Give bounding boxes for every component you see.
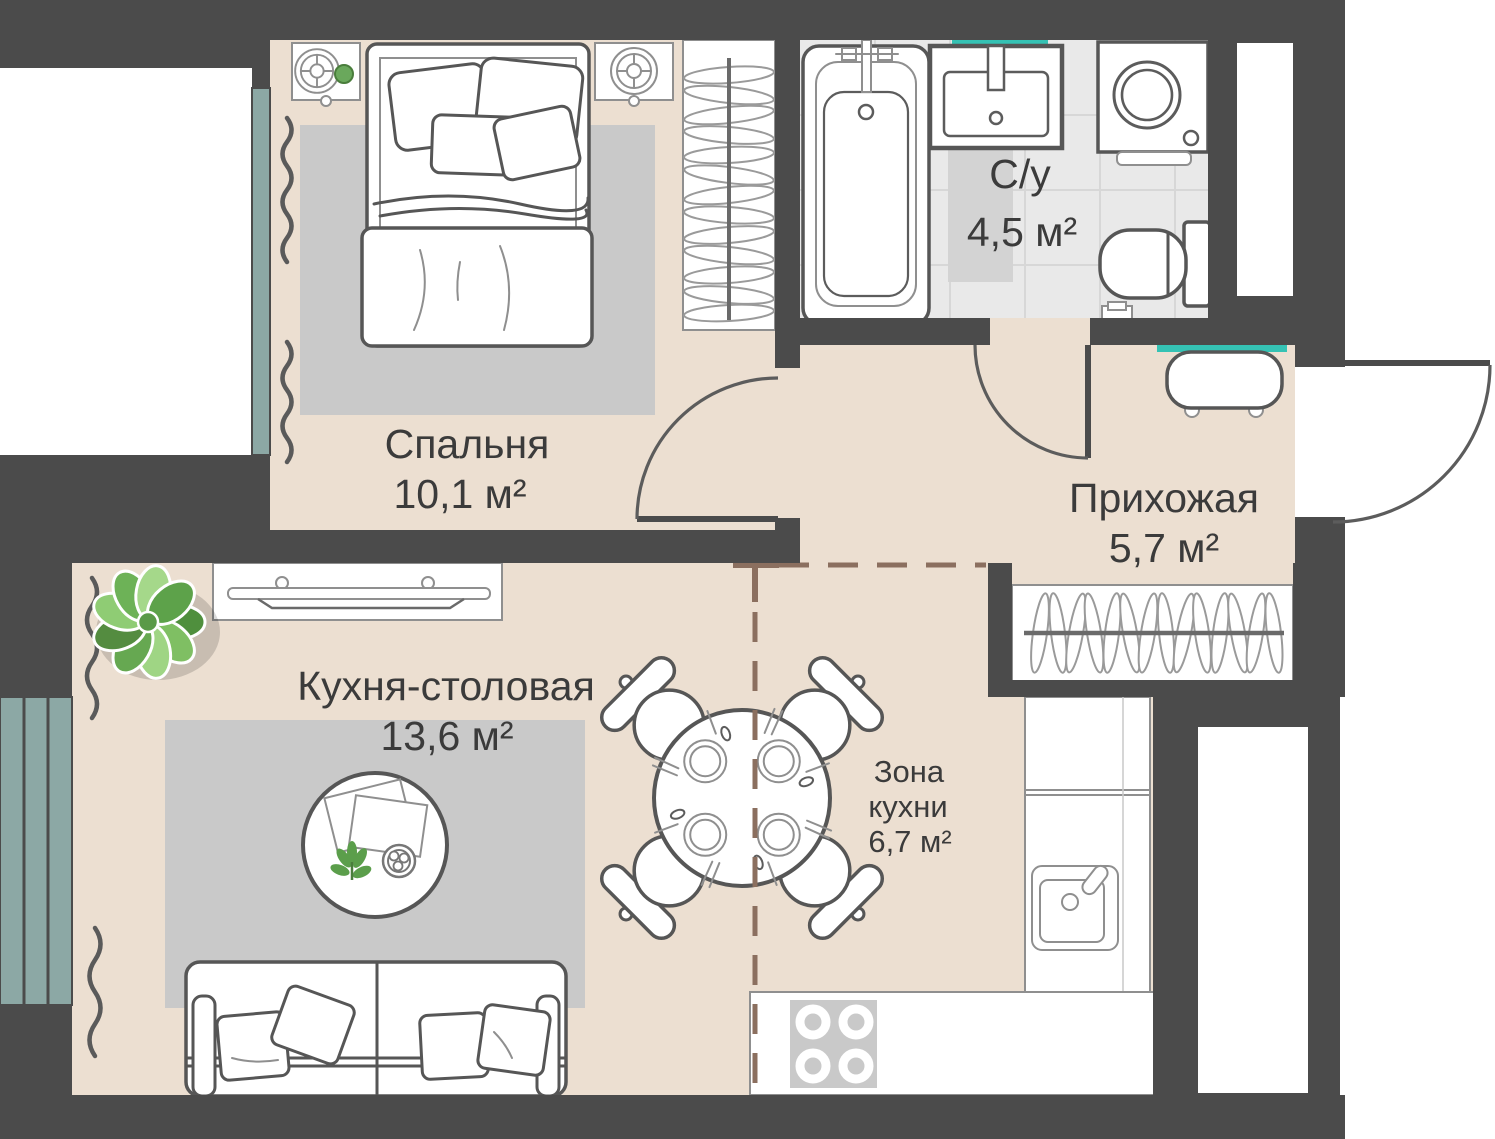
- living-window: [0, 697, 72, 1005]
- bathroom-name: С/у: [989, 151, 1051, 197]
- nightstand-left: [292, 43, 360, 106]
- wardrobe: [683, 40, 775, 330]
- floor-plan: Спальня 10,1 м² С/у 4,5 м² Прихожая 5,7 …: [0, 0, 1495, 1139]
- hallway-area: 5,7 м²: [1109, 525, 1219, 571]
- bath-doorway-floor: [990, 318, 1090, 345]
- tv-icon: [228, 588, 490, 599]
- bedroom-window: [252, 88, 270, 455]
- bedroom-area: 10,1 м²: [393, 471, 526, 517]
- duct-right: [1198, 727, 1308, 1093]
- bathtub: [803, 40, 929, 324]
- duct-top: [1237, 43, 1293, 296]
- kitchen-dining-name: Кухня-столовая: [297, 663, 595, 709]
- floor-plan-svg: Спальня 10,1 м² С/у 4,5 м² Прихожая 5,7 …: [0, 0, 1495, 1139]
- bed: [362, 44, 592, 346]
- bathroom-area: 4,5 м²: [967, 209, 1077, 255]
- hallway-name: Прихожая: [1069, 475, 1259, 521]
- kitchen-zone-area: 6,7 м²: [868, 824, 951, 859]
- bench: [1167, 352, 1282, 417]
- dining-table: [654, 710, 830, 886]
- tv-console: [213, 563, 502, 620]
- nightstand-plant-icon: [335, 65, 353, 83]
- bathroom-sink: [930, 40, 1062, 148]
- kitchen-zone-line2: кухни: [868, 789, 947, 824]
- bed-blanket: [362, 228, 592, 346]
- coat-rack: [1012, 585, 1293, 682]
- bedroom-name: Спальня: [385, 421, 550, 467]
- stove: [790, 1000, 877, 1088]
- sofa: [186, 962, 566, 1096]
- bowl-icon: [383, 845, 415, 877]
- washing-machine: [1098, 42, 1208, 165]
- bedroom-doorway-floor: [775, 368, 800, 518]
- kitchen-sink: [1032, 863, 1118, 950]
- kitchen-dining-area: 13,6 м²: [380, 713, 513, 759]
- nightstand-right: [595, 43, 673, 106]
- coffee-table: [303, 773, 447, 917]
- kitchen-counter-bottom: [750, 992, 1155, 1095]
- entrance-door: [1333, 363, 1490, 522]
- kitchen-zone-line1: Зона: [874, 754, 945, 789]
